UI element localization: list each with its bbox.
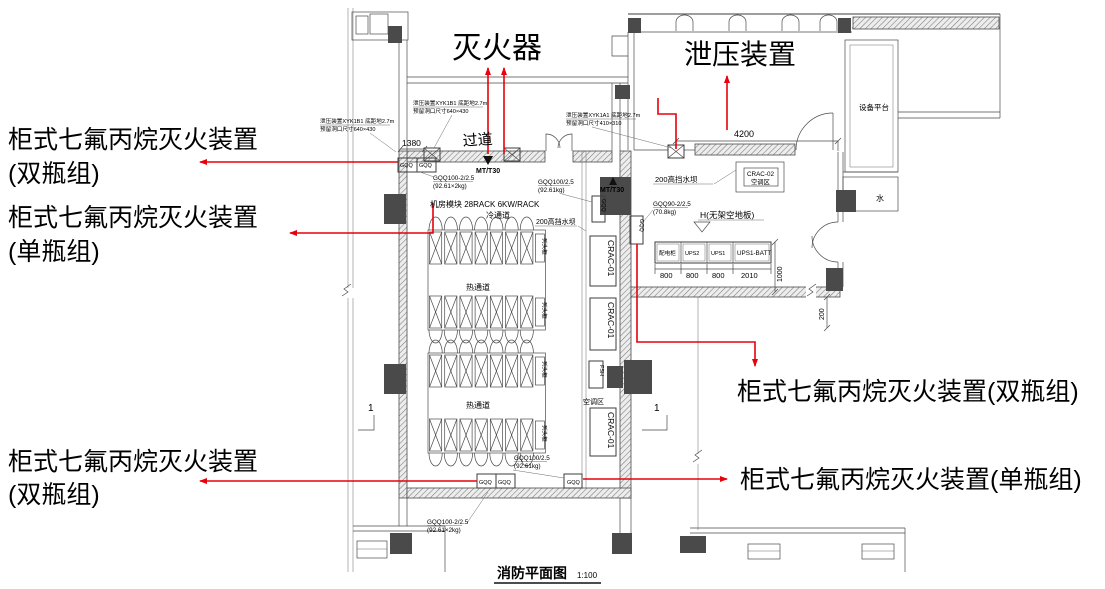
- dimension-value: 200: [819, 308, 826, 320]
- left-dual-label-line1: 柜式七氟丙烷灭火装置: [8, 126, 258, 154]
- corridor-label: 过道: [462, 131, 493, 150]
- section-marker-number: 1: [368, 403, 374, 414]
- row-head-cabinet-label: 列头柜: [540, 425, 548, 442]
- rack-door-arc: [429, 453, 442, 466]
- xyk-annotation: 预留洞口尺寸640×430: [413, 107, 469, 115]
- section-marker-number: 1: [654, 403, 660, 414]
- gqq-spec-label: GQQ90-2/2.5: [653, 201, 691, 208]
- extinguisher-label: 灭火器: [452, 32, 542, 65]
- rack-door-arc: [444, 217, 457, 230]
- extinguisher-type-label: MT/T30: [476, 168, 500, 175]
- rack-door-arc: [490, 340, 503, 353]
- gqq-cabinet-label: GQQ: [600, 199, 606, 213]
- row-head-cabinet-label: 列头柜: [540, 238, 548, 255]
- dimension-lines: [398, 138, 841, 331]
- rack-door-arc: [475, 330, 488, 343]
- bottom-dual-label-line2: (双瓶组): [8, 481, 100, 509]
- floor-plan-drawing: 列头柜列头柜列头柜列头柜 灭火器 泄压装置 柜式七氟丙烷灭火装置 (双瓶组) 柜…: [0, 0, 1105, 589]
- gqq-cabinet-label: GQQ: [400, 163, 414, 169]
- hot-aisle-label: 热通道: [466, 400, 490, 410]
- hot-aisle-label: 热通道: [466, 282, 490, 292]
- relief-valve-red-link: [658, 98, 676, 149]
- rack-door-arc: [459, 330, 472, 343]
- gqq-cabinet-label: GQQ: [567, 480, 581, 486]
- gqq-spec-label: GQQ100-2/2.5: [427, 519, 469, 526]
- right-dual-label: 柜式七氟丙烷灭火装置(双瓶组): [737, 378, 1079, 406]
- window: [782, 15, 799, 31]
- ups-cell-label: 配电柜: [659, 249, 676, 257]
- gqq-cabinet-label: GQQ: [419, 163, 433, 169]
- window: [676, 15, 693, 31]
- gqq-cabinet-label: GQQ: [479, 480, 493, 486]
- rack-door-arc: [505, 340, 518, 353]
- gqq-spec-label: (92.61×2kg): [427, 527, 461, 534]
- gqq-spec-label: (92.61kg): [514, 463, 541, 470]
- crac-unit-label: CRAC-01: [606, 240, 616, 277]
- rack-door-arc: [444, 453, 457, 466]
- row-head-cabinet-label: 列头柜: [540, 302, 548, 319]
- xyk-annotation: 预留洞口尺寸640×430: [320, 125, 376, 133]
- rack-door-arc: [444, 330, 457, 343]
- left-dual-label-line2: (双瓶组): [8, 160, 100, 188]
- gqq-spec-label: GQQ100/2.5: [538, 179, 574, 186]
- module-annotation-line1: 机房模块 28RACK 6KW/RACK: [430, 199, 540, 209]
- door-swing: [812, 222, 838, 248]
- row-head-cabinet-label: 列头柜: [540, 361, 548, 378]
- gqq-cabinet-label: GQQ: [498, 480, 512, 486]
- crac-unit-label: CRAC-01: [606, 412, 616, 449]
- extinguisher-type-label: MT/T30: [600, 187, 624, 194]
- dimension-value: 2010: [741, 271, 758, 280]
- rack-door-arc: [459, 217, 472, 230]
- xyk-annotation: 泄压装置XYK1B1 底距地2.7m: [320, 117, 395, 125]
- xyk-annotation: 泄压装置XYK1A1 底距地2.7m: [566, 111, 641, 119]
- bottom-dual-label-line1: 柜式七氟丙烷灭火装置: [8, 448, 258, 476]
- rack-door-arc: [429, 340, 442, 353]
- double-door-leaf: [546, 134, 560, 151]
- rack-door-arc: [429, 330, 442, 343]
- ups-cell-label: UPS1-BATT: [737, 250, 771, 257]
- pressure-relief-label: 泄压装置: [684, 39, 796, 70]
- right-single-label: 柜式七氟丙烷灭火装置(单瓶组): [740, 466, 1082, 494]
- rack-door-arc: [429, 217, 442, 230]
- server-racks: 列头柜列头柜列头柜列头柜: [428, 217, 548, 466]
- left-single-label-line1: 柜式七氟丙烷灭火装置: [8, 204, 258, 232]
- module-annotation-line2: 冷通道: [486, 210, 510, 220]
- rack-door-arc: [475, 340, 488, 353]
- dimension-value: 800: [686, 271, 699, 280]
- gqq-spec-label: GQQ100/2.5: [514, 455, 550, 462]
- xyk-annotation: 泄压装置XYK1B1 底距地2.7m: [413, 99, 488, 107]
- rack-door-arc: [459, 340, 472, 353]
- crac02-label-line1: CRAC-02: [747, 171, 774, 178]
- water-dam-label: 200高挡水坝: [655, 174, 698, 184]
- rack-door-arc: [490, 453, 503, 466]
- crac02-label-line2: 空调区: [751, 177, 770, 186]
- water-room-label: 水: [876, 193, 884, 203]
- fire-protection-plan-page: 列头柜列头柜列头柜列头柜 灭火器 泄压装置 柜式七氟丙烷灭火装置 (双瓶组) 柜…: [0, 0, 1105, 589]
- gqq-spec-label: (92.61×2kg): [433, 183, 467, 190]
- dimension-value: 800: [712, 271, 725, 280]
- ups-cell-label: UPS2: [685, 251, 699, 257]
- rack-door-arc: [444, 340, 457, 353]
- dimension-value: 4200: [734, 129, 754, 139]
- gqq-spec-label: (70.8kg): [653, 209, 676, 216]
- left-single-arrow: [290, 203, 433, 233]
- ups-cell-label: UPS1: [711, 251, 725, 257]
- rack-door-arc: [475, 453, 488, 466]
- gqq-cabinet-label: GQQ: [638, 219, 644, 233]
- equipment-platform-label: 设备平台: [859, 102, 889, 112]
- rack-door-arc: [459, 453, 472, 466]
- rack-door-arc: [520, 217, 533, 230]
- small-annotations: 机房模块 28RACK 6KW/RACK 冷通道 泄压装置XYK1B1 底距地2…: [320, 99, 754, 534]
- window: [820, 15, 837, 31]
- crac-unit-label: CRAC-01: [606, 302, 616, 339]
- title-block: 消防平面图 1:100: [494, 565, 601, 583]
- window: [729, 15, 746, 31]
- water-dam-label: 200高挡水坝: [536, 217, 576, 226]
- xyk-annotation: 预留洞口尺寸410×310: [566, 119, 622, 127]
- door-swing: [796, 113, 833, 150]
- drawing-title: 消防平面图: [497, 565, 567, 581]
- gqq-spec-label: GQQ100-2/2.5: [433, 175, 475, 182]
- ac-zone-label: 空调区: [583, 397, 604, 406]
- dimension-value: 1380: [402, 138, 421, 148]
- dimension-value: 1000: [777, 266, 784, 282]
- gqq-spec-label: (92.61kg): [538, 187, 565, 194]
- left-single-label-line2: (单瓶组): [8, 238, 100, 266]
- pressure-relief-room: [612, 14, 1000, 155]
- drawing-scale: 1:100: [577, 571, 598, 580]
- level-mark-triangle-icon: [694, 222, 710, 232]
- rack-door-arc: [490, 330, 503, 343]
- no-raised-floor-label: H(无架空地板): [700, 210, 754, 220]
- dimension-value: 800: [660, 271, 673, 280]
- rack-door-arc: [520, 340, 533, 353]
- door-swing: [812, 236, 838, 262]
- double-door-leaf: [558, 134, 572, 151]
- fsh-box-label: FSH: [598, 365, 604, 376]
- rack-door-arc: [505, 330, 518, 343]
- rack-door-arc: [520, 330, 533, 343]
- bottom-corner-structures: [353, 498, 905, 572]
